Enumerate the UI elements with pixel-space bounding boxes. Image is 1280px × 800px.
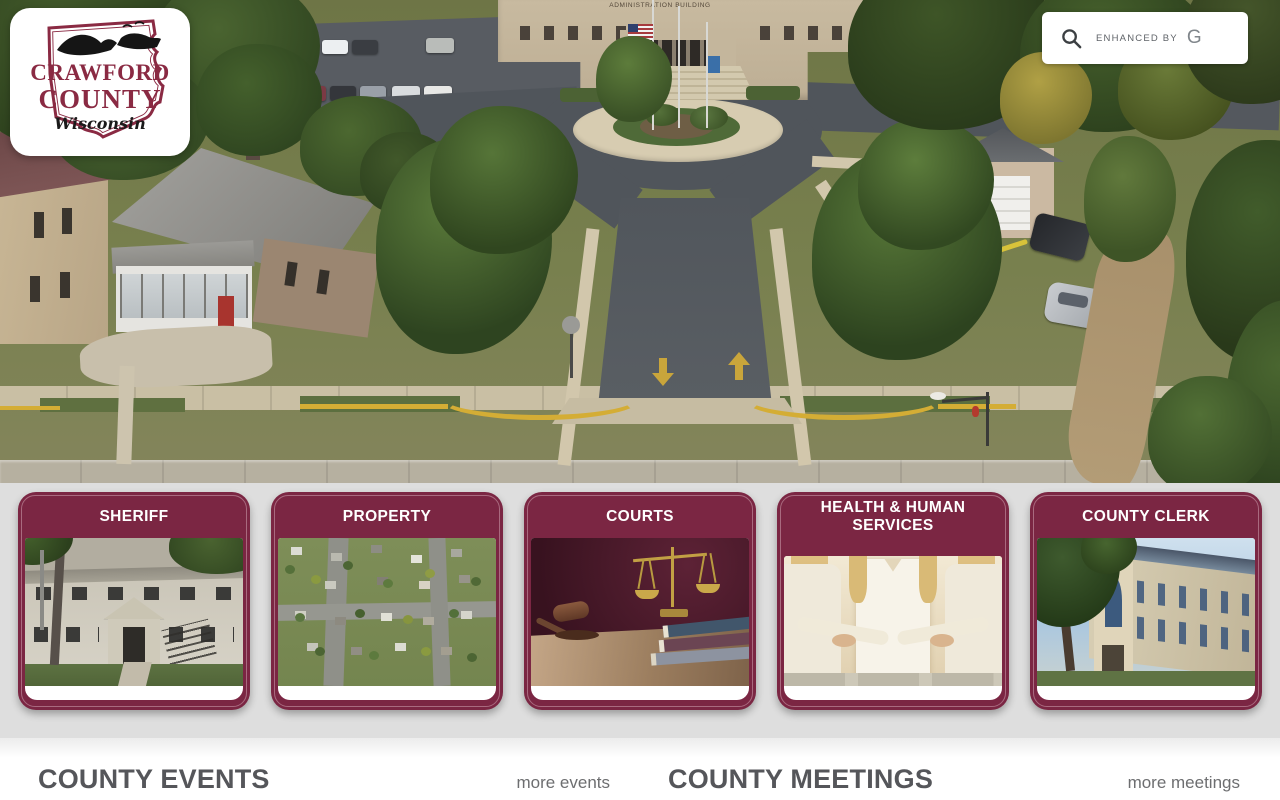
- streetlight-head: [930, 392, 946, 400]
- scales-string: [637, 559, 644, 589]
- entrance-gable: [103, 597, 164, 619]
- flag-pole: [678, 6, 680, 128]
- curb-line-yellow: [300, 404, 448, 409]
- curb-curve-yellow: [742, 376, 946, 420]
- house-window: [30, 276, 40, 302]
- house-window: [62, 208, 72, 234]
- street: [428, 538, 451, 686]
- courthouse-photo: [1037, 538, 1255, 686]
- house-window: [60, 272, 70, 298]
- parked-car: [322, 40, 348, 54]
- county-meetings-title: COUNTY MEETINGS: [668, 764, 933, 795]
- scales-pan: [696, 584, 720, 593]
- walkway: [118, 662, 152, 686]
- scales-pan: [635, 590, 659, 599]
- scales-base: [660, 609, 688, 617]
- gavel-head: [552, 600, 590, 623]
- person-hair: [919, 556, 936, 603]
- county-logo[interactable]: CRAWFORD COUNTY Wisconsin: [10, 8, 190, 156]
- people-holding-hands-photo: [784, 556, 1002, 686]
- scales-string: [698, 553, 705, 583]
- more-events-link[interactable]: more events: [516, 773, 610, 793]
- sheriff-building-photo: [25, 538, 243, 686]
- entrance-door: [1102, 645, 1124, 672]
- card-title: HEALTH & HUMAN SERVICES: [777, 492, 1009, 538]
- house-window: [34, 212, 44, 238]
- arrow-stem: [735, 365, 743, 380]
- tree: [1148, 376, 1272, 483]
- quick-links-band: SHERIFF PROPERTY: [0, 483, 1280, 738]
- county-events-title: COUNTY EVENTS: [38, 764, 270, 795]
- brand-name-line1: CRAWFORD: [10, 60, 190, 86]
- card-image-frame: [531, 538, 749, 700]
- stop-sign-back: [562, 316, 580, 334]
- brand-name-line3: Wisconsin: [10, 114, 190, 133]
- clasped-hands: [832, 634, 856, 647]
- card-image-frame: [1037, 538, 1255, 700]
- street: [278, 601, 496, 621]
- search-enhanced-by-label: ENHANCED BY: [1096, 33, 1178, 44]
- black-suv: [1028, 212, 1092, 262]
- pavement-arrow-down: [652, 358, 674, 390]
- tree: [430, 106, 578, 254]
- county-events-column: COUNTY EVENTS more events: [38, 764, 610, 800]
- fire-hydrant: [972, 406, 979, 417]
- handrail-stairs: [161, 619, 216, 665]
- entrance-door: [123, 627, 145, 664]
- yard-trees: [285, 565, 295, 574]
- building-sign-text: ADMINISTRATION BUILDING: [560, 2, 760, 9]
- wisconsin-flag: [708, 56, 720, 73]
- search-icon: [1060, 27, 1083, 50]
- arrow-head: [652, 373, 674, 386]
- card-image-frame: [784, 556, 1002, 700]
- pavement-arrow-up: [728, 352, 750, 384]
- streetlight-pole: [986, 392, 989, 446]
- card-image-frame: [278, 538, 496, 700]
- clasped-hands: [930, 634, 954, 647]
- us-flag-canton: [628, 24, 638, 32]
- house-roofs: [291, 547, 302, 555]
- jeans: [784, 673, 1002, 686]
- person-hair: [849, 556, 866, 603]
- card-courts[interactable]: COURTS: [524, 492, 756, 710]
- parked-car: [352, 40, 378, 54]
- gavel-block: [555, 630, 599, 640]
- card-county-clerk[interactable]: COUNTY CLERK: [1030, 492, 1262, 710]
- card-title: COURTS: [524, 492, 756, 538]
- google-g-icon: G: [1187, 27, 1202, 49]
- curb-curve-yellow: [438, 376, 642, 420]
- arrow-head: [728, 352, 750, 365]
- scales-string: [648, 559, 655, 589]
- building-planter: [746, 86, 800, 100]
- flag-pole: [706, 22, 708, 128]
- hero-aerial-photo: ADMINISTRATION BUILDING: [0, 0, 1280, 483]
- arrow-stem: [659, 358, 667, 373]
- county-meetings-column: COUNTY MEETINGS more meetings: [668, 764, 1240, 800]
- gavel-scales-photo: [531, 538, 749, 686]
- lawn: [1037, 671, 1255, 686]
- lower-content: COUNTY EVENTS more events COUNTY MEETING…: [0, 738, 1280, 800]
- card-title: PROPERTY: [271, 492, 503, 538]
- card-title: COUNTY CLERK: [1030, 492, 1262, 538]
- brand-name-line2: COUNTY: [10, 84, 190, 115]
- more-meetings-link[interactable]: more meetings: [1128, 773, 1240, 793]
- card-health-human-services[interactable]: HEALTH & HUMAN SERVICES: [777, 492, 1009, 710]
- card-property[interactable]: PROPERTY: [271, 492, 503, 710]
- card-image-frame: [25, 538, 243, 700]
- scales-string: [709, 553, 716, 583]
- card-sheriff[interactable]: SHERIFF: [18, 492, 250, 710]
- aerial-neighborhood-photo: [278, 538, 496, 686]
- flag-pole: [40, 550, 43, 630]
- parked-car: [426, 38, 454, 53]
- curb-line-yellow: [0, 406, 60, 410]
- tree-autumn: [1000, 52, 1092, 144]
- stop-sign-pole: [570, 330, 573, 378]
- card-title: SHERIFF: [18, 492, 250, 538]
- site-search-box[interactable]: ENHANCED BY G: [1042, 12, 1248, 64]
